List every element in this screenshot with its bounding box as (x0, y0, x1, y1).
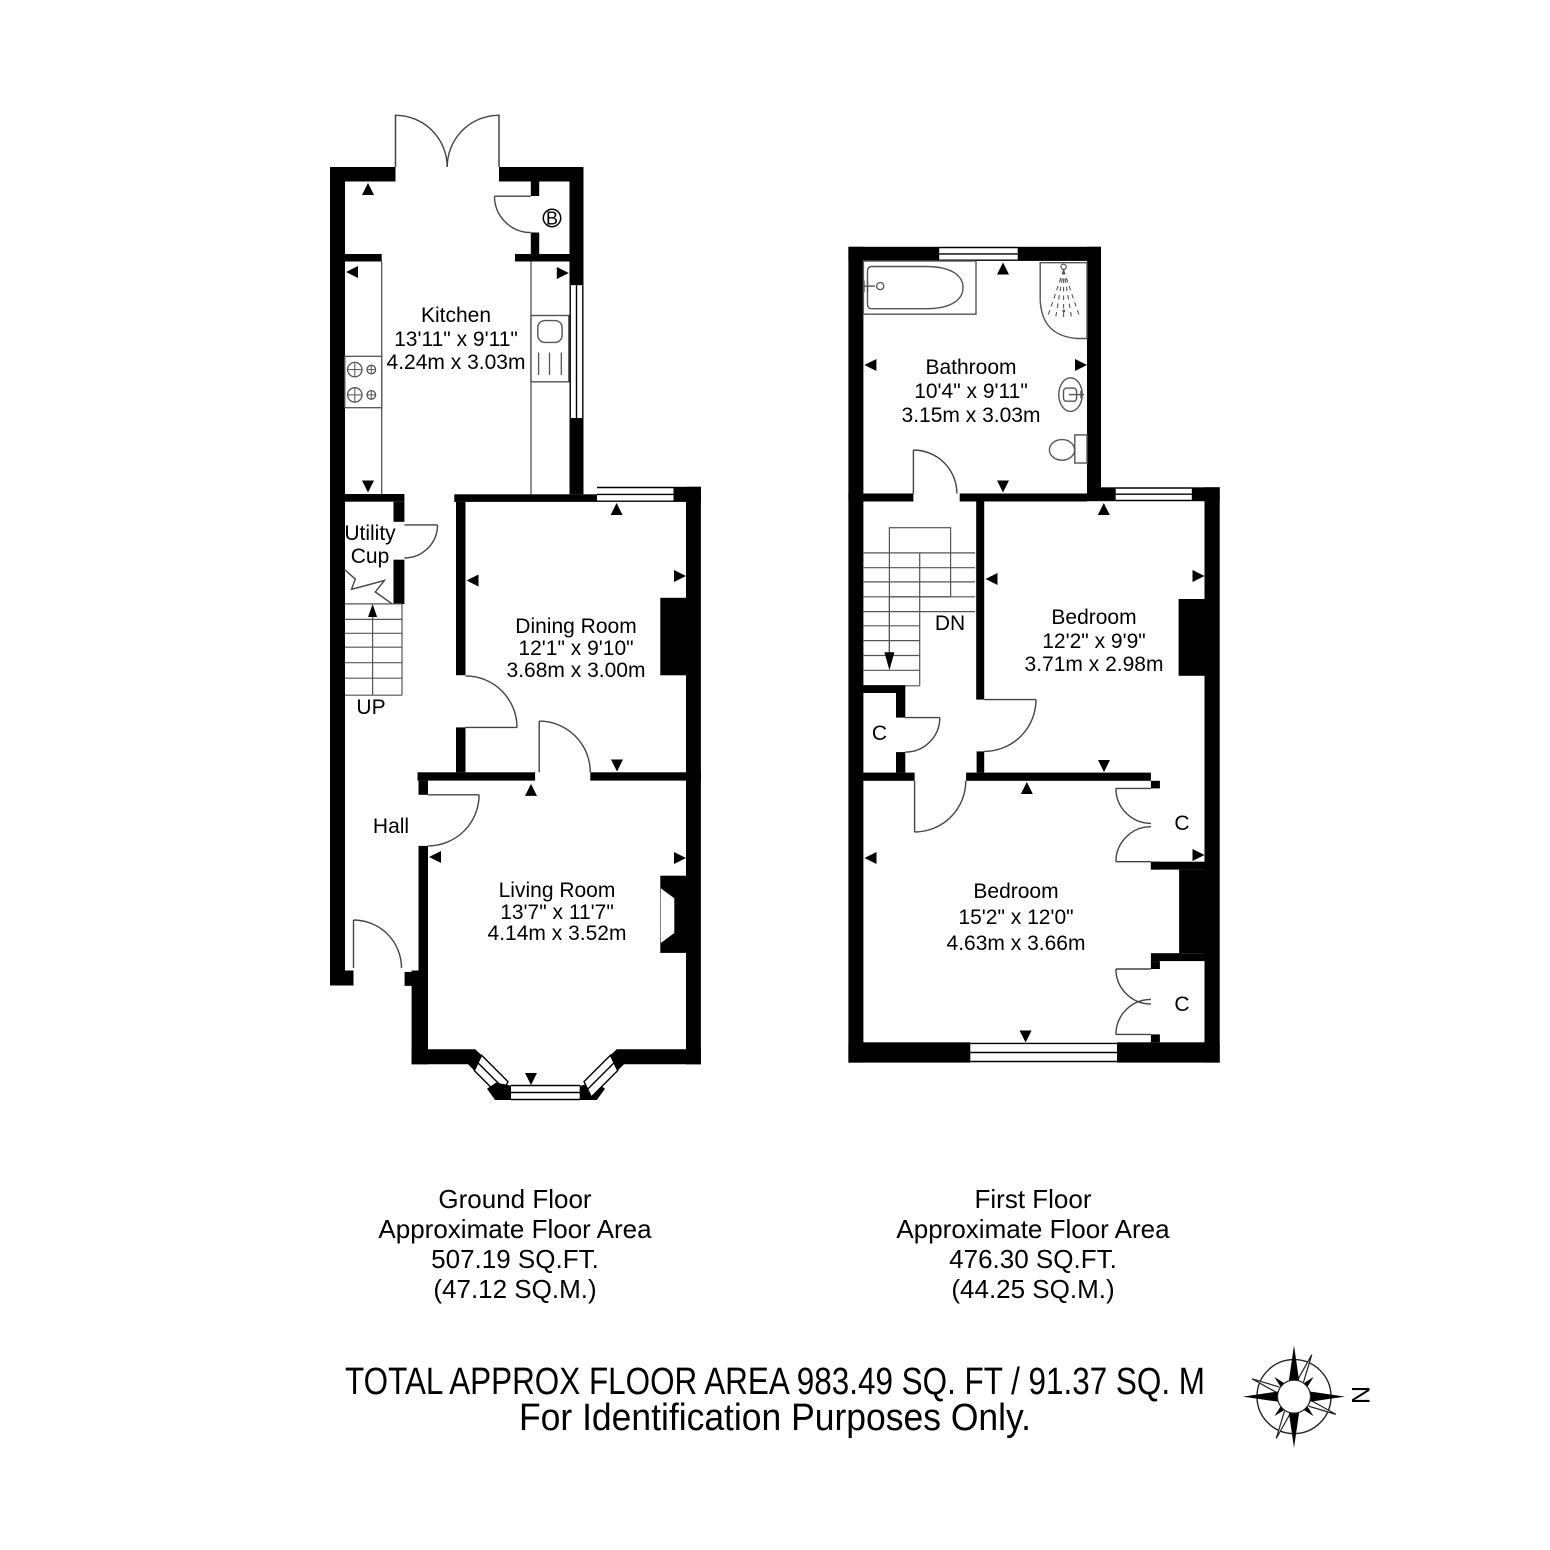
svg-text:476.30 SQ.FT.: 476.30 SQ.FT. (949, 1244, 1117, 1274)
svg-text:C: C (872, 722, 887, 745)
svg-text:13'7" x 11'7": 13'7" x 11'7" (500, 901, 614, 924)
svg-text:3.68m x 3.00m: 3.68m x 3.00m (507, 659, 646, 682)
svg-text:Bathroom: Bathroom (925, 356, 1016, 379)
svg-text:4.63m x 3.66m: 4.63m x 3.66m (947, 932, 1086, 955)
svg-text:N: N (1346, 1386, 1374, 1404)
svg-text:C: C (1174, 993, 1189, 1016)
svg-text:C: C (1174, 812, 1189, 835)
svg-text:3.15m x 3.03m: 3.15m x 3.03m (902, 404, 1041, 427)
svg-text:Kitchen: Kitchen (421, 304, 491, 327)
svg-text:First Floor: First Floor (975, 1184, 1092, 1214)
svg-text:10'4" x 9'11": 10'4" x 9'11" (914, 380, 1028, 403)
svg-text:DN: DN (935, 612, 965, 635)
svg-text:507.19 SQ.FT.: 507.19 SQ.FT. (431, 1244, 599, 1274)
svg-text:12'2" x 9'9": 12'2" x 9'9" (1042, 630, 1146, 653)
svg-text:Bedroom: Bedroom (973, 880, 1058, 903)
svg-text:Living Room: Living Room (499, 879, 616, 902)
svg-text:UP: UP (356, 696, 385, 719)
svg-text:Approximate Floor Area: Approximate Floor Area (378, 1214, 652, 1244)
svg-text:Bedroom: Bedroom (1051, 606, 1136, 629)
svg-text:B: B (546, 209, 558, 229)
svg-text:For Identification Purposes On: For Identification Purposes Only. (519, 1397, 1031, 1439)
svg-text:(47.12 SQ.M.): (47.12 SQ.M.) (433, 1274, 596, 1304)
svg-text:15'2" x 12'0": 15'2" x 12'0" (958, 906, 1073, 929)
svg-text:Utility: Utility (344, 522, 396, 545)
svg-text:Hall: Hall (373, 815, 409, 838)
svg-text:Ground Floor: Ground Floor (438, 1184, 592, 1214)
svg-text:12'1" x 9'10": 12'1" x 9'10" (518, 637, 633, 660)
svg-text:Dining Room: Dining Room (515, 615, 636, 638)
svg-text:4.14m x 3.52m: 4.14m x 3.52m (488, 922, 627, 945)
svg-text:Cup: Cup (351, 545, 390, 568)
svg-text:(44.25 SQ.M.): (44.25 SQ.M.) (951, 1274, 1114, 1304)
svg-text:Approximate Floor Area: Approximate Floor Area (896, 1214, 1170, 1244)
svg-text:4.24m x 3.03m: 4.24m x 3.03m (387, 351, 526, 374)
svg-text:13'11" x 9'11": 13'11" x 9'11" (394, 328, 518, 351)
svg-text:3.71m x 2.98m: 3.71m x 2.98m (1025, 653, 1164, 676)
